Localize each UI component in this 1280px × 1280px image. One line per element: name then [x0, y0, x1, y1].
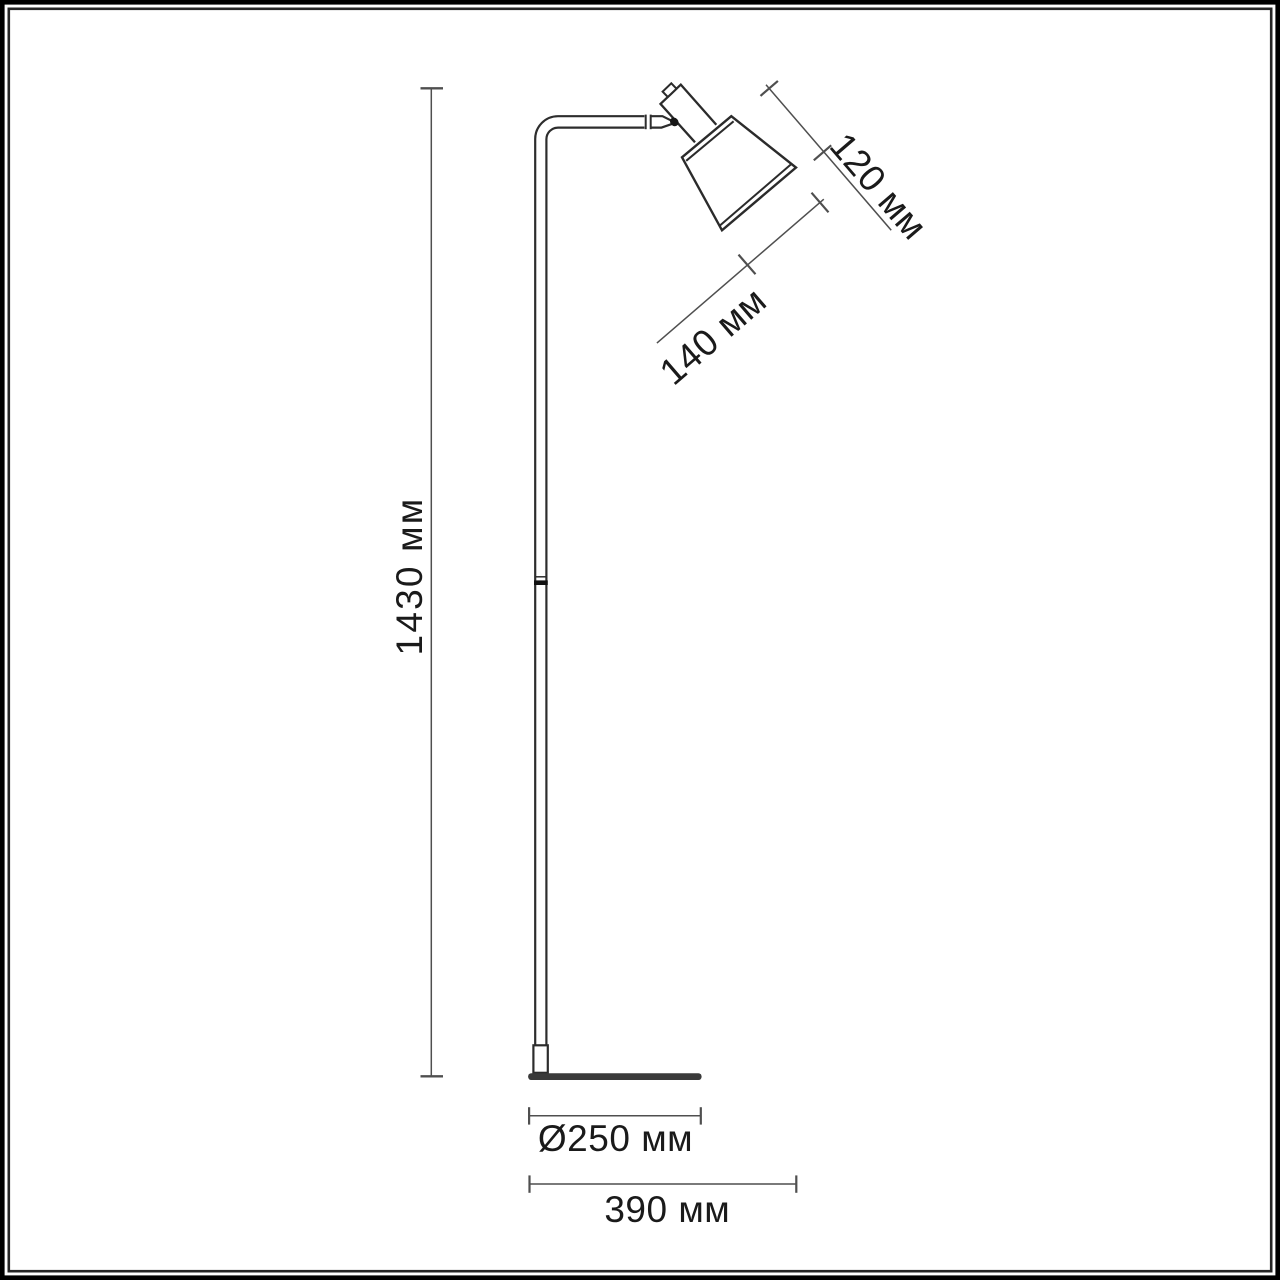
svg-text:Ø250 мм: Ø250 мм: [538, 1118, 693, 1159]
svg-text:390 мм: 390 мм: [604, 1189, 730, 1230]
svg-text:1430 мм: 1430 мм: [389, 497, 430, 656]
